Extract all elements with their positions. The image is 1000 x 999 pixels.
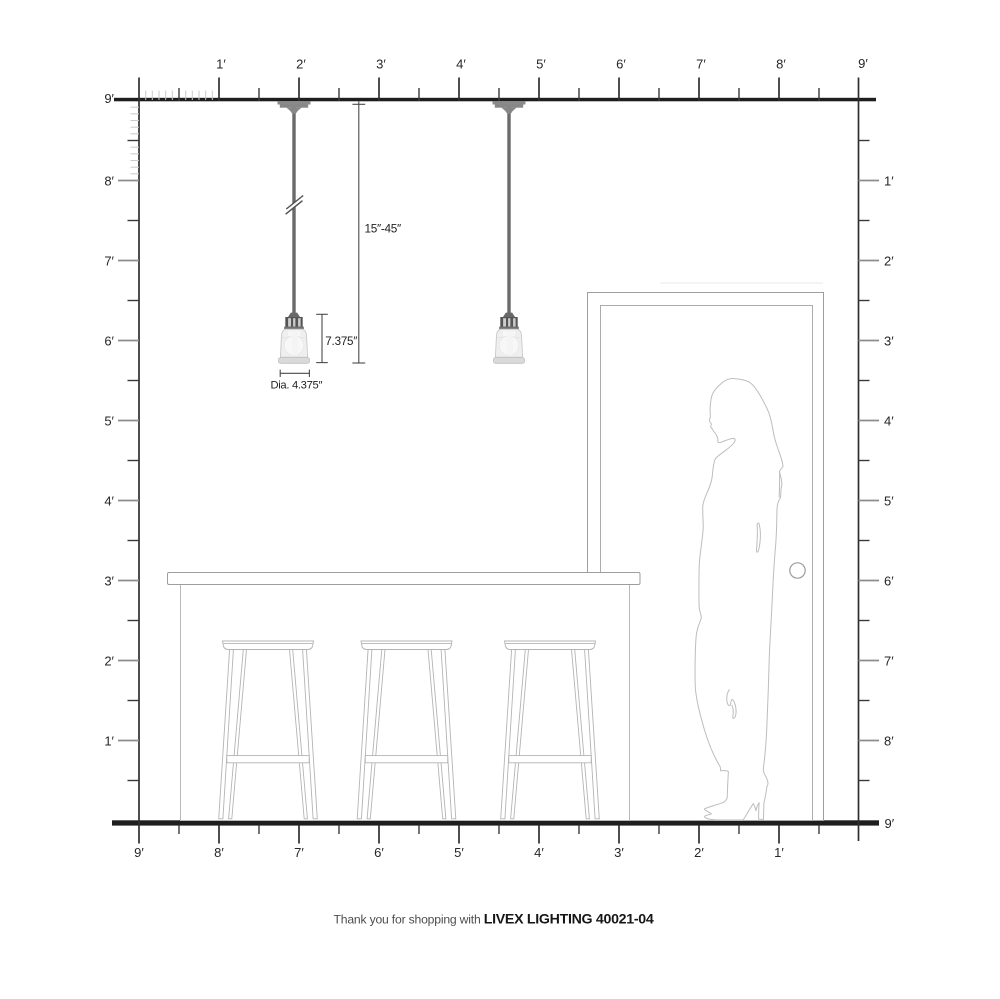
svg-text:8′: 8′ [214,845,224,860]
svg-text:7′: 7′ [696,57,706,72]
svg-text:7′: 7′ [884,653,894,668]
svg-text:8′: 8′ [776,57,786,72]
svg-text:5′: 5′ [454,845,464,860]
svg-text:9′: 9′ [885,816,895,831]
svg-text:4′: 4′ [884,413,894,428]
svg-text:Thank you for shopping with LI: Thank you for shopping with LIVEX LIGHTI… [334,912,654,928]
svg-text:3′: 3′ [614,845,624,860]
svg-text:6′: 6′ [374,845,384,860]
svg-text:9′: 9′ [134,845,144,860]
svg-text:8′: 8′ [104,173,114,188]
svg-text:6′: 6′ [104,333,114,348]
svg-text:3′: 3′ [376,57,386,72]
svg-text:1′: 1′ [104,733,114,748]
svg-text:15″-45″: 15″-45″ [365,222,402,236]
svg-text:8′: 8′ [884,733,894,748]
svg-text:2′: 2′ [296,57,306,72]
svg-text:7′: 7′ [294,845,304,860]
svg-text:9′: 9′ [858,56,868,71]
svg-text:7.375″: 7.375″ [325,335,357,348]
svg-text:2′: 2′ [884,253,894,268]
svg-text:4′: 4′ [456,57,466,72]
svg-text:6′: 6′ [884,573,894,588]
svg-text:4′: 4′ [104,493,114,508]
svg-text:3′: 3′ [104,573,114,588]
svg-text:9′: 9′ [104,91,114,106]
svg-text:Dia. 4.375″: Dia. 4.375″ [270,380,322,392]
svg-text:6′: 6′ [616,57,626,72]
svg-text:5′: 5′ [884,493,894,508]
svg-text:7′: 7′ [104,253,114,268]
svg-text:4′: 4′ [534,845,544,860]
svg-text:5′: 5′ [536,57,546,72]
svg-text:1′: 1′ [216,57,226,72]
svg-text:2′: 2′ [694,845,704,860]
svg-text:1′: 1′ [774,845,784,860]
svg-text:5′: 5′ [104,413,114,428]
svg-text:3′: 3′ [884,333,894,348]
svg-text:2′: 2′ [104,653,114,668]
svg-text:1′: 1′ [884,173,894,188]
